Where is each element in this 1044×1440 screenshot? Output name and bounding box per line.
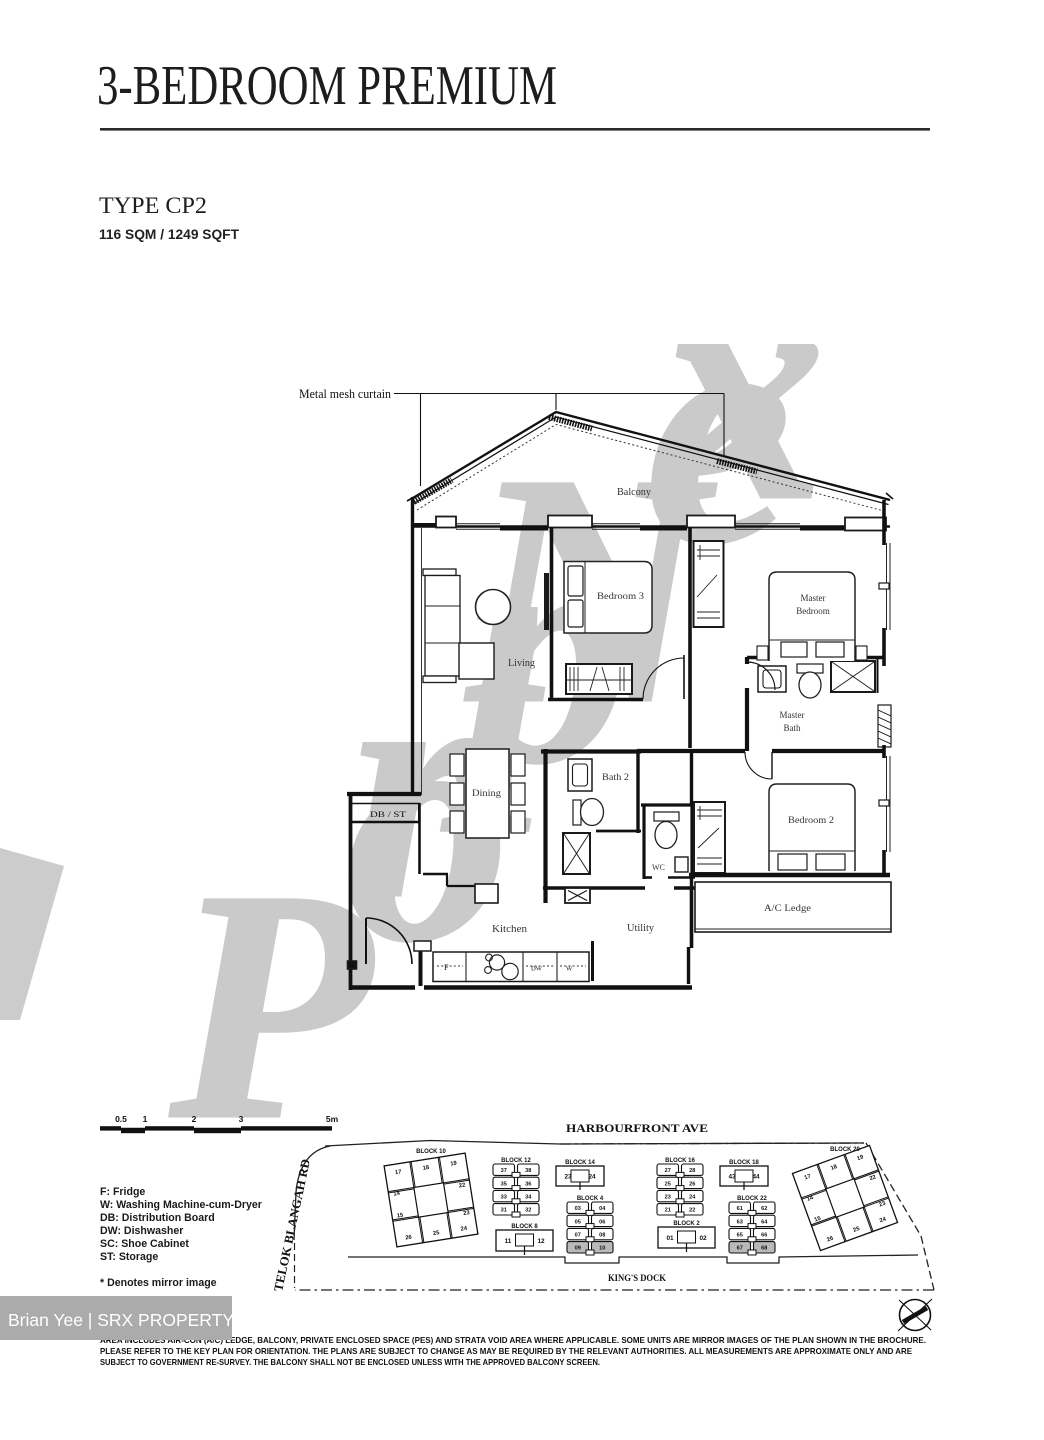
svg-text:61: 61 xyxy=(737,1206,743,1212)
svg-text:DB / ST: DB / ST xyxy=(370,809,407,819)
svg-text:68: 68 xyxy=(761,1246,767,1252)
svg-text:2: 2 xyxy=(192,1114,197,1124)
svg-text:38: 38 xyxy=(525,1168,531,1174)
svg-text:28: 28 xyxy=(689,1168,695,1174)
svg-text:KING'S DOCK: KING'S DOCK xyxy=(608,1274,667,1284)
svg-text:x: x xyxy=(655,204,825,569)
svg-text:63: 63 xyxy=(737,1219,743,1225)
svg-text:23: 23 xyxy=(665,1195,671,1201)
svg-text:SC: Shoe Cabinet: SC: Shoe Cabinet xyxy=(100,1238,189,1250)
svg-text:31: 31 xyxy=(501,1208,507,1214)
svg-text:BLOCK 14: BLOCK 14 xyxy=(565,1160,595,1166)
svg-text:Brian Yee | SRX PROPERTY: Brian Yee | SRX PROPERTY xyxy=(8,1310,234,1330)
svg-text:F: F xyxy=(444,963,449,972)
svg-text:Utility: Utility xyxy=(627,923,654,934)
svg-text:35: 35 xyxy=(501,1181,507,1187)
svg-text:DW: DW xyxy=(531,966,543,973)
svg-text:Metal mesh curtain: Metal mesh curtain xyxy=(299,387,392,401)
svg-text:BLOCK 2: BLOCK 2 xyxy=(673,1221,700,1227)
svg-text:* Denotes mirror image: * Denotes mirror image xyxy=(100,1277,217,1289)
svg-text:Bedroom: Bedroom xyxy=(796,606,830,616)
svg-text:5m: 5m xyxy=(326,1114,339,1124)
svg-text:11: 11 xyxy=(505,1238,512,1245)
svg-text:A/C Ledge: A/C Ledge xyxy=(764,903,811,913)
svg-text:1: 1 xyxy=(143,1114,148,1124)
svg-text:Bedroom 2: Bedroom 2 xyxy=(788,815,834,825)
svg-text:116 SQM / 1249 SQFT: 116 SQM / 1249 SQFT xyxy=(99,226,239,242)
svg-text:TYPE CP2: TYPE CP2 xyxy=(99,193,207,218)
svg-text:37: 37 xyxy=(501,1168,507,1174)
svg-text:17: 17 xyxy=(395,1169,402,1176)
svg-text:03: 03 xyxy=(575,1206,581,1212)
svg-text:22: 22 xyxy=(689,1208,695,1214)
svg-text:62: 62 xyxy=(761,1206,767,1212)
svg-text:Bath 2: Bath 2 xyxy=(602,772,629,782)
svg-text:Bedroom 3: Bedroom 3 xyxy=(597,591,645,601)
svg-text:65: 65 xyxy=(737,1233,743,1239)
svg-text:Master: Master xyxy=(780,710,805,720)
svg-text:F: Fridge: F: Fridge xyxy=(100,1186,145,1198)
svg-text:44: 44 xyxy=(752,1174,760,1181)
svg-text:BLOCK 18: BLOCK 18 xyxy=(729,1160,759,1166)
svg-text:Kitchen: Kitchen xyxy=(492,924,527,935)
svg-text:25: 25 xyxy=(665,1181,671,1187)
svg-text:Bath: Bath xyxy=(784,723,801,733)
svg-text:24: 24 xyxy=(588,1174,596,1181)
svg-text:02: 02 xyxy=(699,1235,707,1242)
svg-text:W: W xyxy=(566,966,573,973)
svg-text:BLOCK 22: BLOCK 22 xyxy=(737,1196,767,1202)
svg-text:09: 09 xyxy=(575,1246,581,1252)
svg-text:3-BEDROOM PREMIUM: 3-BEDROOM PREMIUM xyxy=(97,55,557,117)
svg-text:HARBOURFRONT AVE: HARBOURFRONT AVE xyxy=(566,1123,708,1135)
svg-text:BLOCK 20: BLOCK 20 xyxy=(830,1147,860,1153)
svg-text:Master: Master xyxy=(801,593,826,603)
svg-text:22: 22 xyxy=(459,1182,466,1189)
svg-text:BLOCK 4: BLOCK 4 xyxy=(577,1196,604,1202)
svg-text:24: 24 xyxy=(689,1195,696,1201)
svg-text:ST: Storage: ST: Storage xyxy=(100,1251,158,1263)
svg-text:DB: Distribution Board: DB: Distribution Board xyxy=(100,1212,215,1224)
svg-text:Living: Living xyxy=(508,658,535,669)
svg-text:Balcony: Balcony xyxy=(617,487,651,498)
svg-text:DW: Dishwasher: DW: Dishwasher xyxy=(100,1225,183,1237)
svg-text:12: 12 xyxy=(537,1238,545,1245)
svg-text:34: 34 xyxy=(525,1195,532,1201)
svg-text:26: 26 xyxy=(689,1181,695,1187)
svg-text:27: 27 xyxy=(665,1168,671,1174)
svg-text:BLOCK 10: BLOCK 10 xyxy=(416,1149,446,1155)
svg-text:06: 06 xyxy=(599,1219,605,1225)
svg-text:0.5: 0.5 xyxy=(115,1114,127,1124)
svg-text:32: 32 xyxy=(525,1208,531,1214)
svg-text:33: 33 xyxy=(501,1195,507,1201)
svg-text:66: 66 xyxy=(761,1233,767,1239)
svg-text:SUBJECT TO GOVERNMENT RE-SURVE: SUBJECT TO GOVERNMENT RE-SURVEY. THE BAL… xyxy=(100,1358,600,1367)
svg-text:W: Washing Machine-cum-Dryer: W: Washing Machine-cum-Dryer xyxy=(100,1199,262,1211)
svg-text:WC: WC xyxy=(652,863,665,872)
svg-text:Dining: Dining xyxy=(472,788,502,798)
svg-text:04: 04 xyxy=(599,1206,606,1212)
svg-text:01: 01 xyxy=(666,1235,674,1242)
svg-text:3: 3 xyxy=(239,1114,244,1124)
svg-text:08: 08 xyxy=(599,1233,605,1239)
svg-text:21: 21 xyxy=(665,1208,671,1214)
svg-text:10: 10 xyxy=(599,1246,605,1252)
svg-text:05: 05 xyxy=(575,1219,581,1225)
svg-text:64: 64 xyxy=(761,1219,768,1225)
svg-text:67: 67 xyxy=(737,1246,743,1252)
svg-text:BLOCK 8: BLOCK 8 xyxy=(511,1224,538,1230)
svg-text:07: 07 xyxy=(575,1233,581,1239)
svg-text:BLOCK 16: BLOCK 16 xyxy=(665,1158,695,1164)
svg-text:36: 36 xyxy=(525,1181,531,1187)
svg-text:BLOCK 12: BLOCK 12 xyxy=(501,1158,531,1164)
svg-text:PLEASE REFER TO THE KEY PLAN F: PLEASE REFER TO THE KEY PLAN FOR ORIENTA… xyxy=(100,1347,913,1356)
